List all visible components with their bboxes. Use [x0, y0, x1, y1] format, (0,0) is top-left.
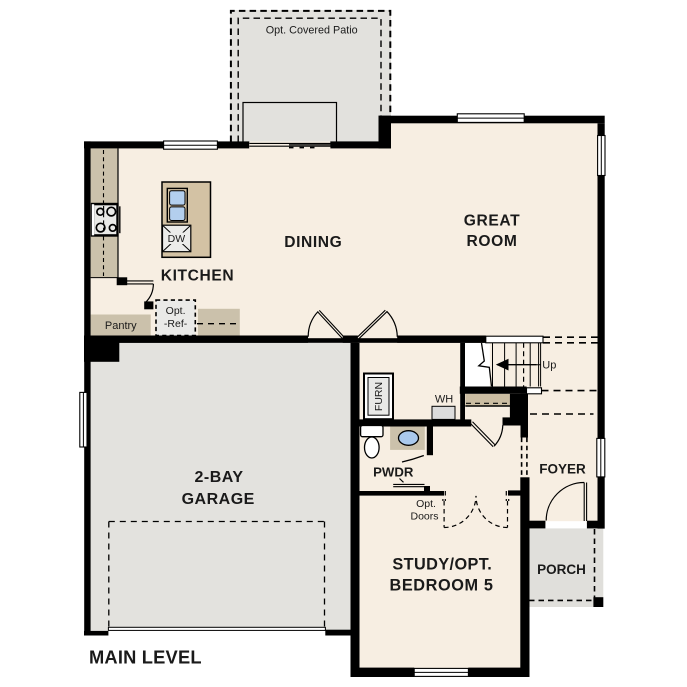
svg-text:Opt.: Opt.: [416, 498, 436, 510]
svg-text:DW: DW: [168, 233, 186, 245]
svg-text:FURN: FURN: [373, 382, 385, 411]
svg-text:BEDROOM 5: BEDROOM 5: [389, 577, 493, 595]
svg-text:KITCHEN: KITCHEN: [161, 267, 235, 284]
svg-text:FOYER: FOYER: [539, 462, 586, 477]
svg-text:GARAGE: GARAGE: [182, 491, 255, 508]
svg-text:PORCH: PORCH: [537, 562, 586, 577]
svg-text:GREAT: GREAT: [464, 213, 520, 230]
svg-text:WH: WH: [435, 394, 453, 406]
svg-text:-Ref-: -Ref-: [164, 318, 188, 330]
svg-text:Doors: Doors: [410, 511, 438, 523]
svg-text:2-BAY: 2-BAY: [194, 469, 243, 486]
svg-text:DINING: DINING: [284, 234, 342, 251]
svg-text:Up: Up: [542, 360, 556, 372]
svg-text:Opt.: Opt.: [166, 305, 186, 317]
svg-text:STUDY/OPT.: STUDY/OPT.: [392, 556, 492, 574]
svg-text:Opt. Covered Patio: Opt. Covered Patio: [266, 25, 358, 37]
svg-text:Pantry: Pantry: [105, 320, 137, 332]
svg-text:MAIN LEVEL: MAIN LEVEL: [89, 647, 202, 668]
svg-text:PWDR: PWDR: [373, 464, 414, 479]
svg-text:ROOM: ROOM: [467, 233, 518, 250]
